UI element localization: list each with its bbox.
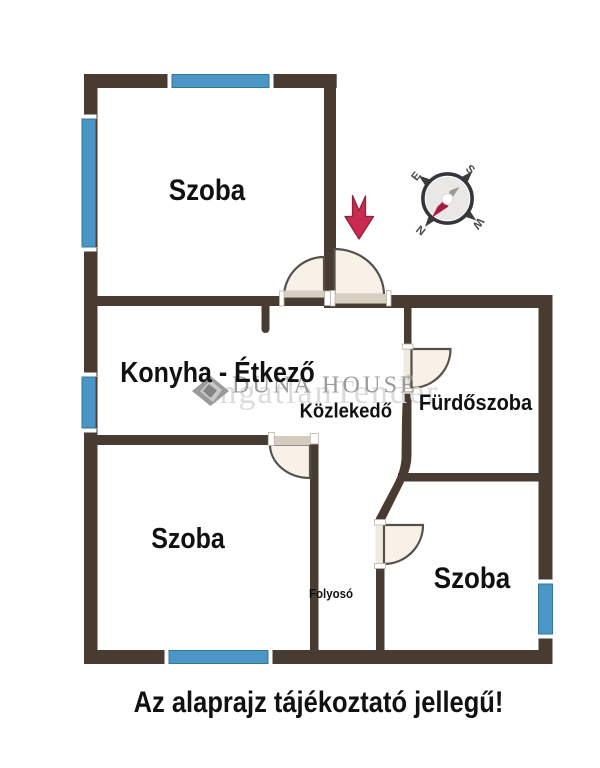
svg-text:Az alaprajz tájékoztató jelleg: Az alaprajz tájékoztató jellegű! [134,685,504,718]
svg-text:Szoba: Szoba [169,173,246,206]
svg-text:Konyha - Étkező: Konyha - Étkező [120,355,314,388]
svg-text:®: ® [406,373,413,383]
svg-text:Szoba: Szoba [434,561,511,594]
svg-text:Fürdőszoba: Fürdőszoba [419,391,532,415]
svg-text:Közlekedő: Közlekedő [300,400,392,423]
svg-text:Szoba: Szoba [151,522,226,554]
svg-text:Folyosó: Folyosó [309,586,353,601]
